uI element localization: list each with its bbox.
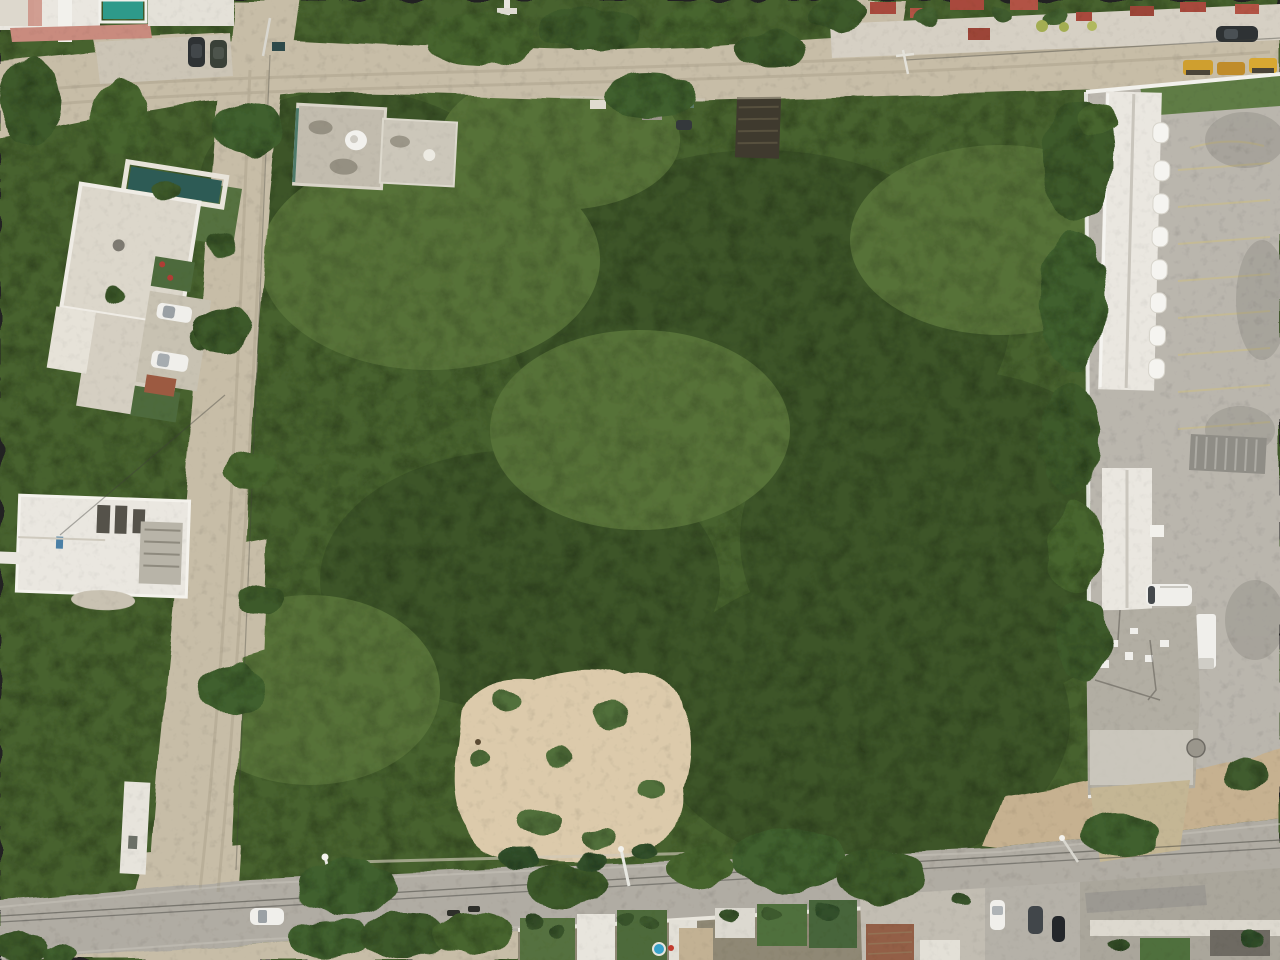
dumpster <box>272 42 285 51</box>
metal-roof-structure <box>1189 434 1267 474</box>
parked-dark-car-fence <box>676 120 692 130</box>
shuttle-bus <box>1146 584 1192 606</box>
sandy-yard <box>679 928 713 960</box>
aerial-photo-canvas <box>0 0 1280 960</box>
rooftop-pool <box>103 0 143 19</box>
small-white-structure <box>120 781 151 874</box>
villa-courtyard <box>151 256 195 292</box>
red-yard-object <box>668 945 674 951</box>
roof-openings <box>96 505 145 535</box>
dark-shack <box>735 96 781 158</box>
kiddie-pool <box>653 943 665 955</box>
compound-palm <box>1225 759 1269 791</box>
moving-white-car <box>250 908 284 925</box>
aerial-photo: Undeveloped forested land parcel bounded… <box>0 0 1280 960</box>
sand-clearing <box>454 669 690 862</box>
roof-vent <box>1187 739 1205 757</box>
box-truck <box>1196 614 1216 669</box>
clearing-debris <box>475 739 481 745</box>
